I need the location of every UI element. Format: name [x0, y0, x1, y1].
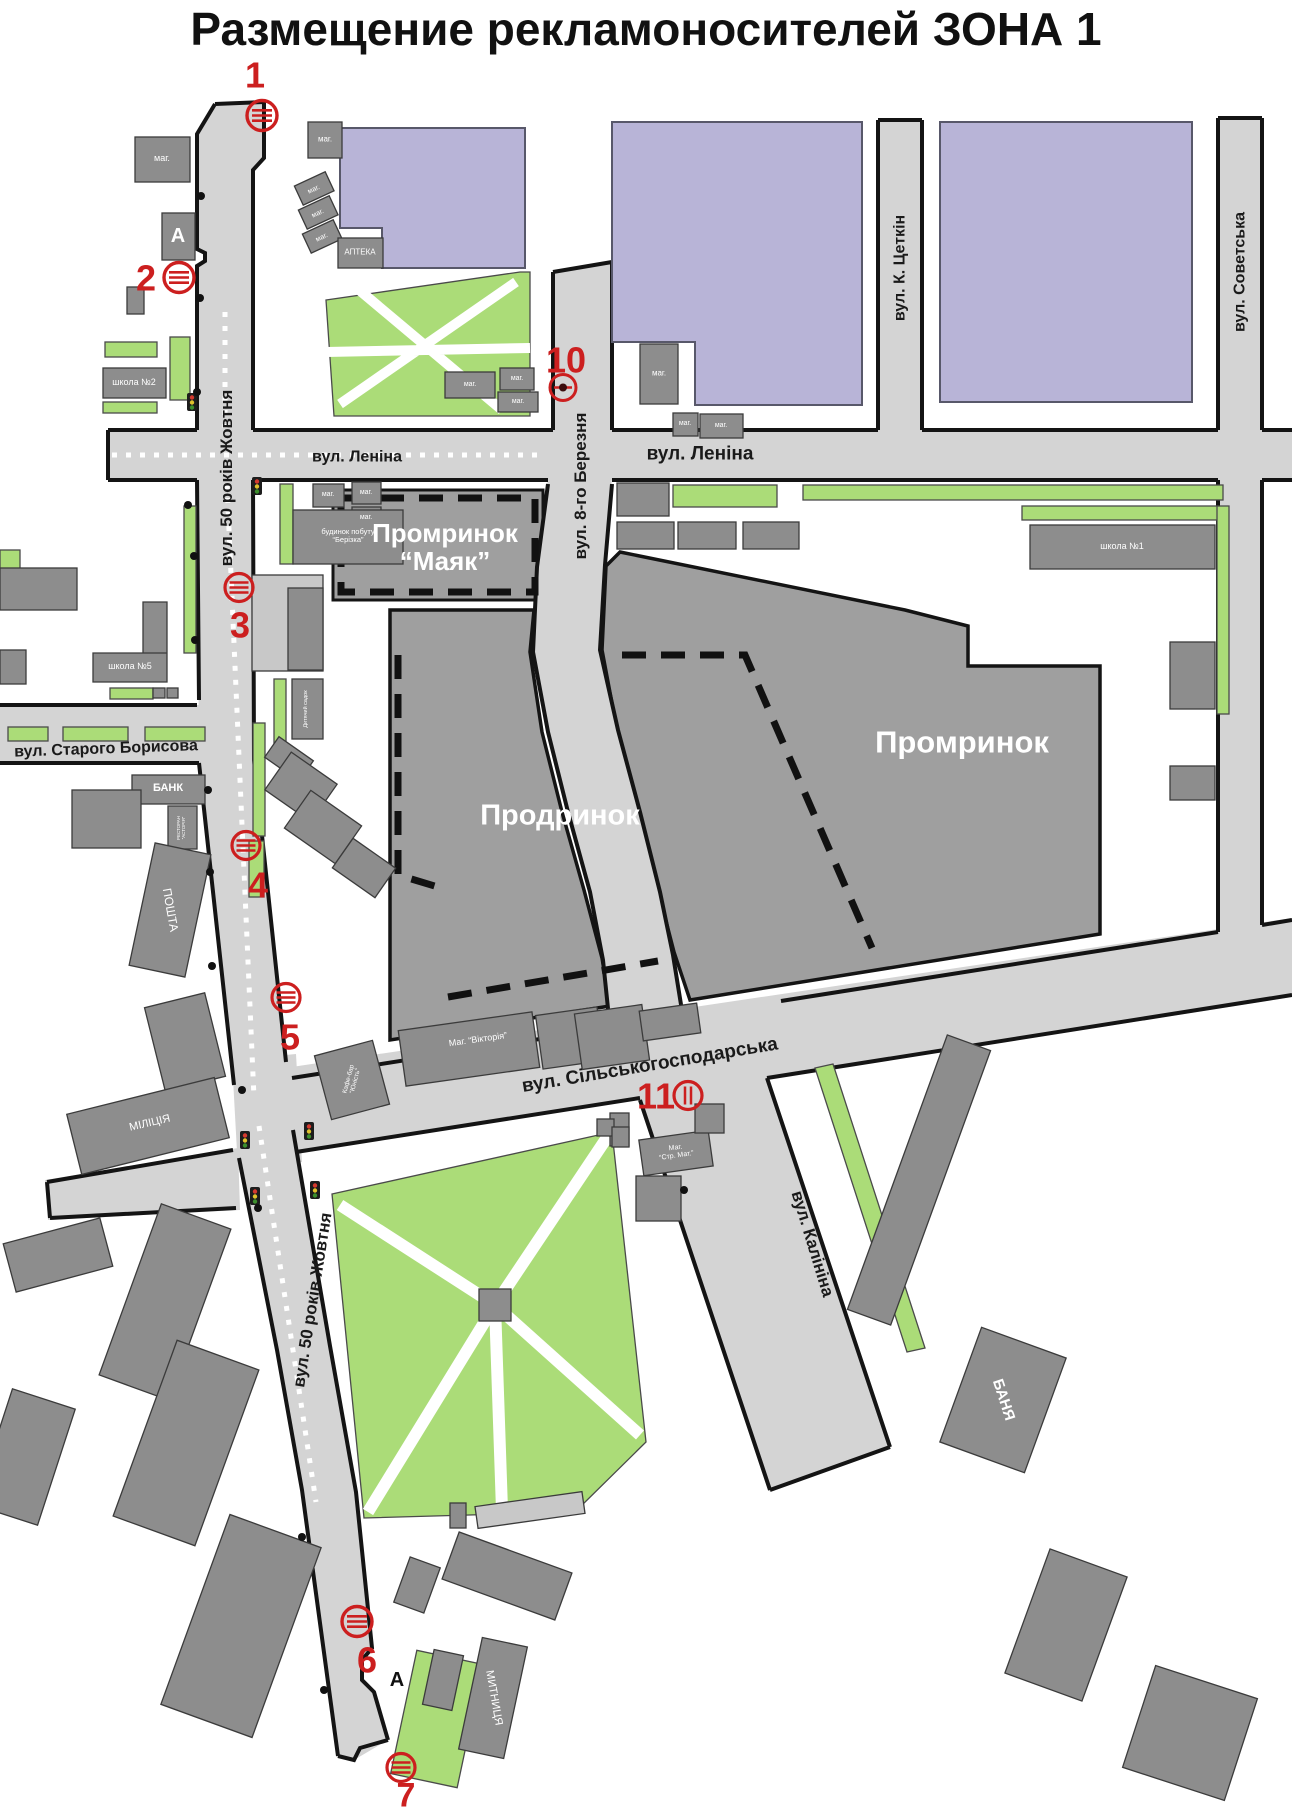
building — [1170, 642, 1215, 709]
building — [0, 650, 26, 684]
small-building — [153, 688, 165, 698]
ad-marker-5 — [269, 981, 303, 1020]
green-strip — [803, 485, 1223, 500]
bus-stop-building — [162, 213, 195, 260]
traffic-light-icon — [250, 1187, 260, 1205]
billboard-icon — [222, 571, 256, 605]
green-strip — [145, 727, 205, 741]
billboard-icon — [547, 372, 579, 404]
ad-marker-2 — [161, 260, 197, 301]
ad-marker-11 — [671, 1079, 705, 1118]
green-strip — [1022, 506, 1218, 520]
building — [0, 1389, 75, 1525]
small-building — [612, 1127, 629, 1147]
shop-building — [700, 414, 743, 438]
building — [1005, 1549, 1127, 1701]
billboard-icon — [229, 829, 263, 863]
building — [678, 522, 736, 549]
post-office-building — [129, 843, 211, 977]
shop-building — [640, 344, 678, 404]
green-strip — [110, 688, 153, 699]
traffic-light-icon — [304, 1122, 314, 1140]
shop-building — [135, 137, 190, 182]
billboard-icon — [384, 1751, 418, 1785]
billboard-icon — [161, 260, 197, 296]
street-sovetska-fill — [1218, 118, 1262, 432]
building — [0, 568, 77, 610]
shop-building — [308, 122, 342, 158]
bank-building — [132, 775, 205, 804]
green-strip — [673, 485, 777, 507]
banya-building — [940, 1327, 1066, 1472]
green-strip — [105, 342, 157, 357]
building — [636, 1176, 681, 1221]
small-building — [167, 688, 178, 698]
park-center-square — [479, 1289, 511, 1321]
berizka-building — [293, 510, 403, 564]
building — [743, 522, 799, 549]
building — [394, 1557, 440, 1613]
ad-marker-3 — [222, 571, 256, 610]
building — [1123, 1666, 1258, 1801]
market-areas — [333, 490, 1100, 1040]
building — [617, 483, 669, 516]
traffic-light-icon — [310, 1181, 320, 1199]
kindergarten-building — [292, 679, 323, 739]
shop-building — [500, 368, 534, 390]
billboard-icon — [339, 1604, 375, 1640]
building — [442, 1532, 572, 1620]
green-strip — [170, 337, 190, 400]
billboard-icon — [244, 98, 280, 134]
green-strip — [103, 402, 157, 413]
small-building — [127, 287, 144, 314]
ad-marker-4 — [229, 829, 263, 868]
green-strip — [184, 506, 196, 653]
ad-marker-10 — [547, 372, 579, 409]
green-strip — [253, 723, 265, 836]
building — [3, 1218, 113, 1292]
school2-building — [103, 368, 166, 398]
shop-building — [673, 413, 698, 436]
green-strip — [280, 484, 293, 564]
building — [288, 588, 323, 670]
small-building — [450, 1503, 466, 1528]
shop-building — [352, 482, 381, 504]
green-strip — [63, 727, 128, 741]
customs-building — [459, 1637, 528, 1758]
traffic-light-icon — [252, 477, 262, 495]
ad-marker-1 — [244, 98, 280, 139]
pharmacy-building — [338, 238, 383, 268]
shop-building — [313, 484, 344, 507]
page-title: Размещение рекламоносителей ЗОНА 1 — [190, 2, 1101, 56]
billboard-icon — [269, 981, 303, 1015]
school1-building — [1030, 525, 1215, 569]
promrynok-area — [602, 552, 1100, 1000]
building — [72, 790, 141, 848]
building — [574, 1005, 649, 1070]
school5-building — [93, 602, 167, 682]
traffic-light-icon — [240, 1131, 250, 1149]
street-tsetkin-fill — [878, 120, 922, 432]
building — [161, 1515, 321, 1738]
ad-marker-6 — [339, 1604, 375, 1645]
green-strip — [1217, 506, 1229, 714]
city-map: Размещение рекламоносителей ЗОНА 1 вул. … — [0, 0, 1292, 1815]
building — [1170, 766, 1215, 800]
shop-building — [445, 372, 495, 398]
building — [617, 522, 674, 549]
lavender-building-3 — [940, 122, 1192, 402]
green-strip — [8, 727, 48, 741]
police-building — [145, 993, 226, 1091]
restaurant-building — [168, 806, 197, 849]
ad-marker-7 — [384, 1751, 418, 1790]
billboard-icon — [671, 1079, 705, 1113]
shop-building — [498, 392, 538, 412]
